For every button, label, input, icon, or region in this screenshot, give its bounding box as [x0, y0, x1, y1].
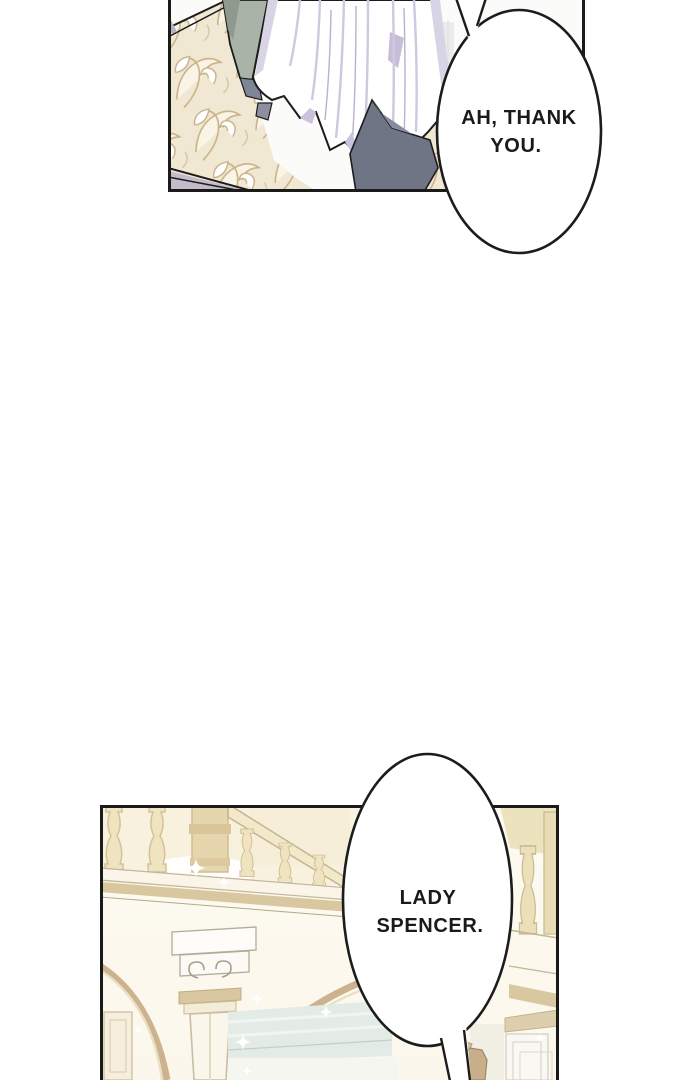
comic-page: AH, THANK YOU. LADY SPENCER.	[0, 0, 700, 1080]
bubble-ellipse	[437, 10, 601, 253]
post	[544, 812, 558, 934]
paneled-pedestal	[506, 1034, 548, 1080]
bubble-top-line-1: AH, THANK	[461, 107, 576, 129]
left-pilaster	[104, 1012, 132, 1080]
bubble-bottom-line-1: LADY	[400, 887, 457, 909]
bubble-top-line-2: YOU.	[490, 135, 541, 157]
bubble-bottom-line-2: SPENCER.	[376, 915, 483, 937]
comic-artwork: AH, THANK YOU. LADY SPENCER.	[0, 0, 700, 1080]
